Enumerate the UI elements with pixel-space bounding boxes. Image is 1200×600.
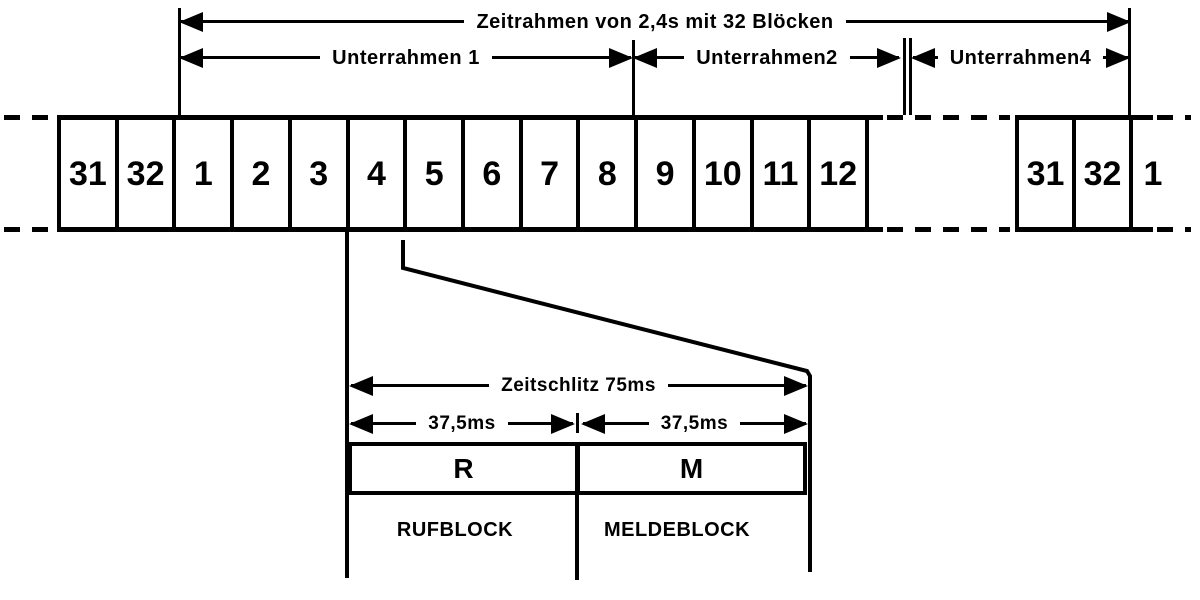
subframe4-label: Unterrahmen4 — [938, 46, 1104, 70]
message-block-cell: M — [575, 446, 803, 491]
second-half-label: 37,5ms — [649, 412, 740, 436]
arrowhead-right-icon — [784, 376, 808, 396]
second-half-arrow: 37,5ms — [581, 412, 808, 436]
arrowhead-right-icon — [551, 414, 575, 434]
block-cell: 2 — [230, 120, 288, 227]
block-cell: 31 — [1019, 120, 1072, 227]
block-cell: 12 — [807, 120, 865, 227]
band-dashes-mid-top — [887, 115, 1010, 120]
band-dashes-left-bottom — [4, 227, 53, 232]
break-line-2 — [909, 38, 912, 115]
band-dashes-mid-bottom — [887, 227, 1010, 232]
band-dashes-right-bottom — [1157, 227, 1191, 232]
first-half-arrow: 37,5ms — [349, 412, 575, 436]
half-divider-tick — [576, 413, 579, 433]
subframe2-arrow: Unterrahmen2 — [633, 46, 901, 70]
block-row-next-frame: 31 32 1 — [1015, 115, 1153, 232]
timeslot-title: Zeitschlitz 75ms — [489, 374, 668, 398]
block-cell: 6 — [461, 120, 519, 227]
timeslot-box: R M — [348, 442, 807, 495]
timeslot-arrow: Zeitschlitz 75ms — [349, 374, 808, 398]
block-cell: 32 — [115, 120, 173, 227]
timeframe-arrow: Zeitrahmen von 2,4s mit 32 Blöcken — [179, 10, 1131, 34]
block-cell: 9 — [634, 120, 692, 227]
arrowhead-left-icon — [633, 48, 657, 68]
block-cell: 1 — [1129, 120, 1163, 227]
block-cell: 5 — [403, 120, 461, 227]
timing-diagram: Zeitrahmen von 2,4s mit 32 Blöcken Unter… — [0, 0, 1200, 600]
block-row-main: 31 32 1 2 3 4 5 6 7 8 9 10 11 12 — [57, 115, 883, 232]
block-cell: 8 — [576, 120, 634, 227]
subframe1-2-divider-line — [632, 40, 635, 115]
subframe1-arrow: Unterrahmen 1 — [179, 46, 633, 70]
arrowhead-left-icon — [349, 376, 373, 396]
block-cell: 32 — [1072, 120, 1129, 227]
subframe2-label: Unterrahmen2 — [684, 46, 850, 70]
arrowhead-left-icon — [911, 48, 935, 68]
arrowhead-left-icon — [349, 414, 373, 434]
frame-start-line — [178, 8, 181, 115]
call-block-cell: R — [352, 446, 575, 491]
block-cell: 31 — [61, 120, 115, 227]
arrowhead-right-icon — [877, 48, 901, 68]
arrowhead-right-icon — [784, 414, 808, 434]
subframe1-label: Unterrahmen 1 — [320, 46, 492, 70]
arrowhead-right-icon — [609, 48, 633, 68]
block-cell: 4 — [346, 120, 404, 227]
arrowhead-right-icon — [1106, 48, 1130, 68]
block-cell: 7 — [519, 120, 577, 227]
subframe4-arrow: Unterrahmen4 — [911, 46, 1130, 70]
arrowhead-left-icon — [179, 12, 203, 32]
arrowhead-left-icon — [581, 414, 605, 434]
block-cell: 3 — [288, 120, 346, 227]
band-dashes-left-top — [4, 115, 53, 120]
arrowhead-left-icon — [179, 48, 203, 68]
block-cell: 10 — [692, 120, 750, 227]
block-cell: 1 — [172, 120, 230, 227]
call-block-name: RUFBLOCK — [397, 519, 513, 542]
block-cell: 11 — [750, 120, 808, 227]
message-block-name: MELDEBLOCK — [604, 519, 750, 542]
block-row-stub — [865, 120, 883, 227]
first-half-label: 37,5ms — [416, 412, 507, 436]
timeframe-title: Zeitrahmen von 2,4s mit 32 Blöcken — [464, 10, 845, 34]
break-line-1 — [903, 38, 906, 115]
frame-end-line — [1128, 8, 1131, 115]
